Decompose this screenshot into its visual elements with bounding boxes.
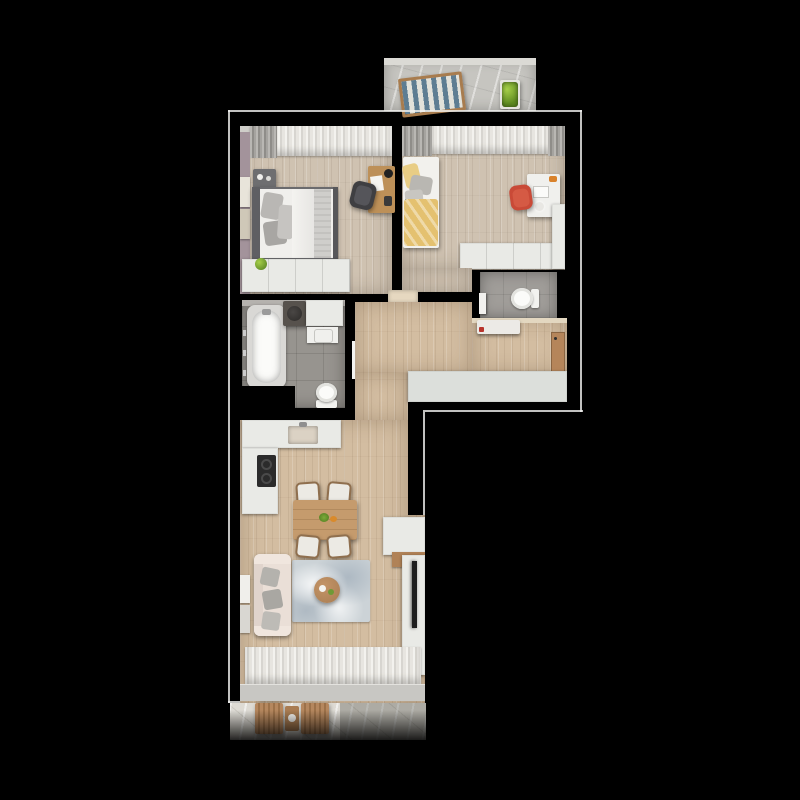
red-chair-seat <box>512 188 530 208</box>
towel-hook-icon <box>243 350 246 356</box>
wall-edge-step <box>423 410 583 412</box>
living-room-curtains <box>245 647 421 684</box>
tv-cabinet-upper <box>383 517 425 555</box>
vanity <box>283 301 306 326</box>
wardrobe-bedroom-2 <box>460 243 565 269</box>
dining-chair <box>326 534 352 559</box>
shoe-bench <box>477 320 520 334</box>
dining-chair <box>295 534 321 559</box>
sofa-pillow <box>261 611 281 631</box>
sofa-pillow <box>261 588 283 610</box>
bed-footboard <box>333 187 338 260</box>
window-sill <box>240 684 425 701</box>
bathroom-toilet <box>315 383 338 408</box>
double-bed <box>252 187 338 260</box>
floor-plan-scene <box>0 0 800 800</box>
bedroom-2-doorway-floor <box>402 268 472 292</box>
wall-art-frame-3 <box>240 575 250 603</box>
planter <box>500 80 520 109</box>
hall-floor <box>355 302 472 373</box>
plant-icon <box>328 589 334 595</box>
faucet-icon <box>262 309 271 315</box>
wall-edge-left <box>228 110 230 703</box>
candle-icon <box>266 176 271 181</box>
red-accessory <box>479 327 484 332</box>
washing-machine-door-icon <box>314 329 333 343</box>
office-chair-seat <box>353 184 373 206</box>
hall-wardrobe <box>408 371 567 402</box>
vanity-sink-icon <box>287 306 302 321</box>
wc-toilet <box>511 288 539 309</box>
plant-icon <box>255 258 267 270</box>
desk-lamp-icon <box>384 169 393 178</box>
faucet-icon <box>299 422 307 427</box>
tv <box>412 561 417 628</box>
bathroom-cabinet <box>306 300 343 326</box>
single-bed <box>403 157 439 248</box>
sofa-pillow <box>259 566 280 587</box>
vase-icon <box>319 585 326 592</box>
table-plant-icon <box>319 513 329 522</box>
entry-door <box>551 332 565 372</box>
balcony-railing <box>384 58 536 65</box>
wall-art-frame-2 <box>240 209 250 239</box>
yellow-blanket <box>404 199 438 246</box>
sofa <box>254 554 291 636</box>
wall-edge-right-upper <box>580 110 582 412</box>
toilet-bowl <box>316 383 337 402</box>
bed-headboard <box>252 187 260 260</box>
bedroom-2-curtain-bunch <box>402 126 432 156</box>
washing-machine <box>307 327 338 343</box>
coffee-table <box>314 577 340 603</box>
wall-art-frame-1 <box>240 177 250 207</box>
towel-hook-icon <box>243 330 246 336</box>
nightstand <box>253 169 276 188</box>
burner-icon <box>261 473 272 484</box>
sofa-armrest <box>254 554 291 564</box>
burner-icon <box>261 459 272 470</box>
bedroom-1-curtain-bunch <box>250 126 277 158</box>
kitchen-counter-top <box>242 420 341 448</box>
red-chair <box>508 184 533 212</box>
kitchen-sink <box>288 426 318 444</box>
wall-edge-top <box>228 110 582 112</box>
bathtub <box>247 305 286 388</box>
balcony-top <box>384 58 536 111</box>
cooktop <box>257 455 276 487</box>
door-handle-icon <box>554 337 557 340</box>
towel-hook-icon <box>243 370 246 376</box>
balcony-fade <box>228 710 428 752</box>
wall-art-frame-4 <box>240 605 250 633</box>
desk-accessory <box>384 196 392 206</box>
bathtub-basin <box>252 310 281 383</box>
toilet-bowl <box>511 288 533 309</box>
corridor-floor <box>355 373 408 421</box>
plant-icon <box>502 82 518 107</box>
wardrobe-bedroom-2-column <box>552 204 565 269</box>
desk-lamp-icon <box>535 202 544 211</box>
wc-door <box>479 293 486 314</box>
bedroom-2-curtain-bunch <box>548 126 565 156</box>
fruit-bowl-icon <box>330 516 337 522</box>
laptop-icon <box>533 186 549 198</box>
candle-icon <box>257 174 263 180</box>
orange-accessory <box>549 176 557 182</box>
bed-throw <box>314 189 331 258</box>
bathroom-wall-notch <box>242 386 295 408</box>
